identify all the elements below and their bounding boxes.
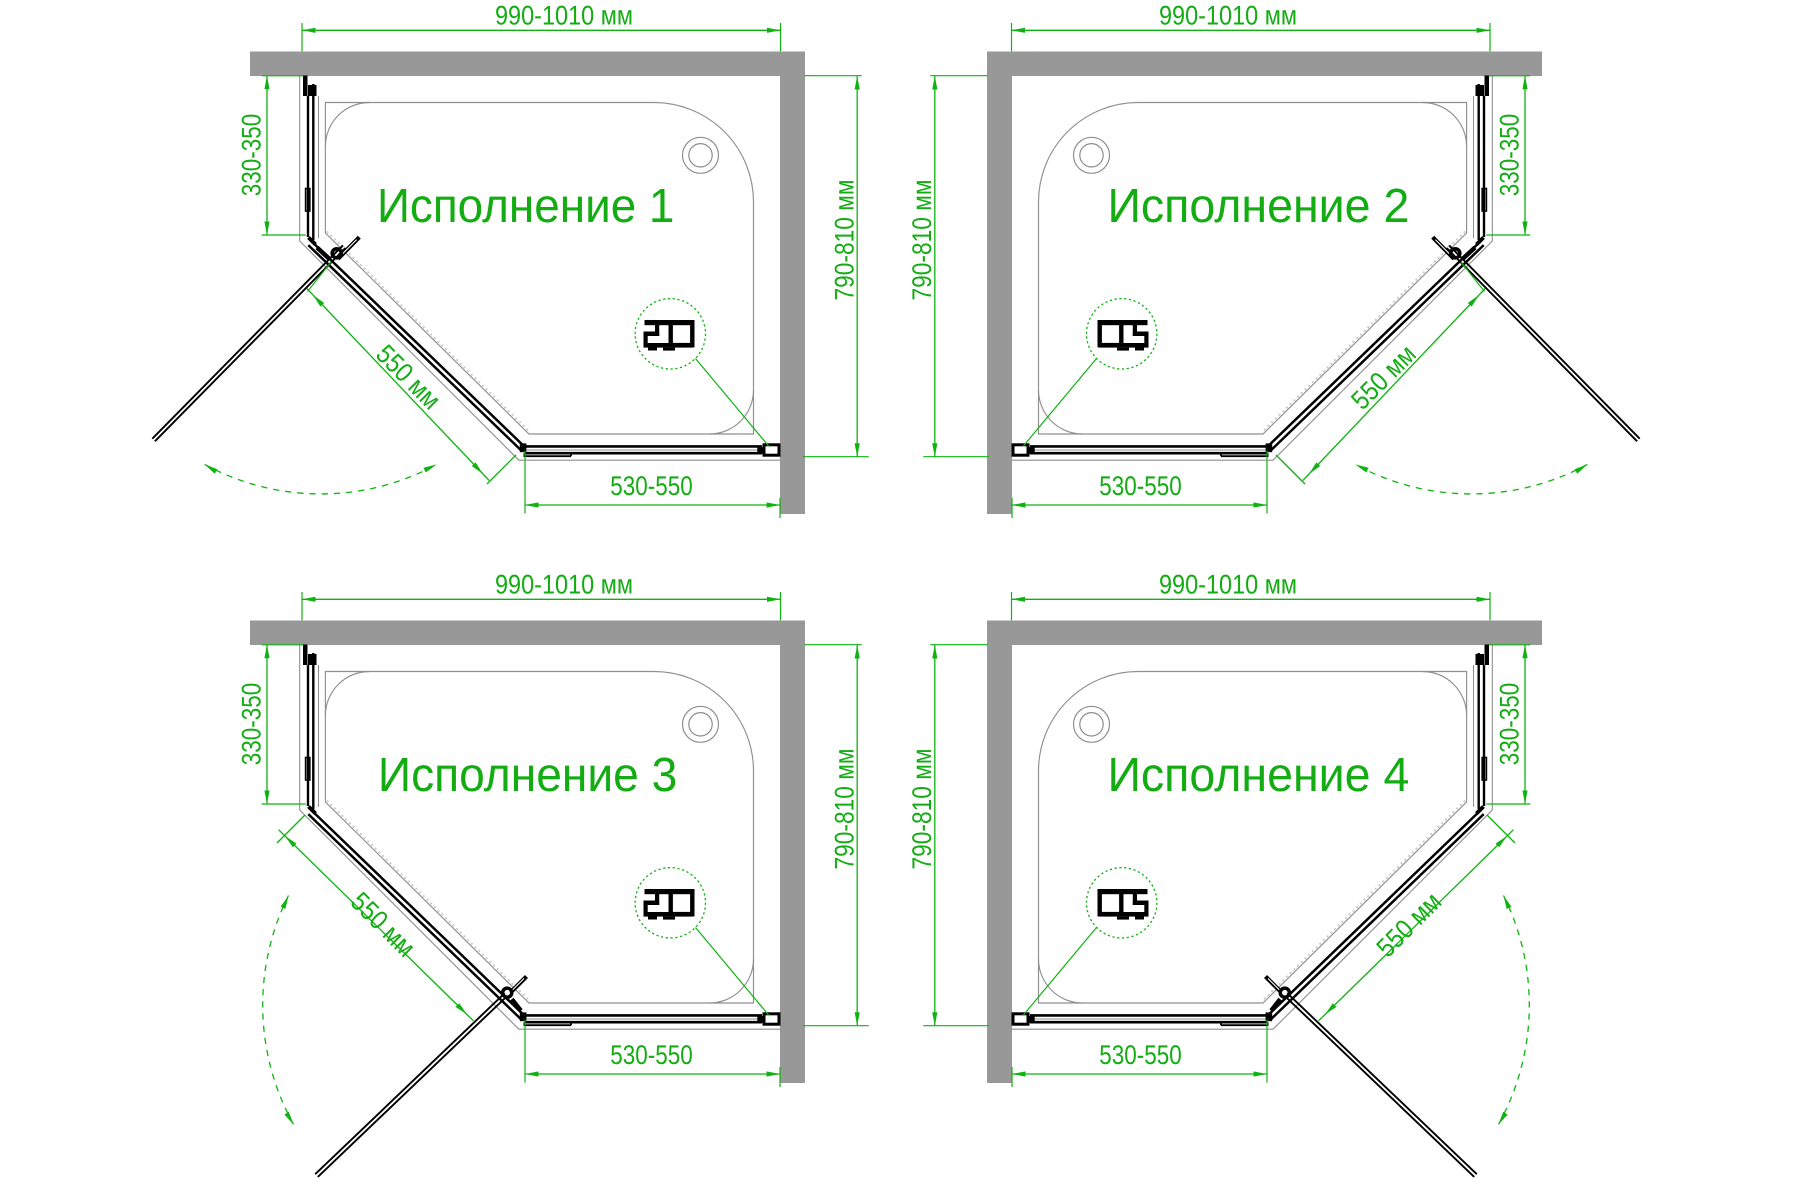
svg-text:990-1010 мм: 990-1010 мм	[1159, 1, 1297, 31]
svg-text:530-550: 530-550	[1099, 1040, 1181, 1070]
svg-text:990-1010 мм: 990-1010 мм	[495, 1, 633, 31]
svg-text:Исполнение 2: Исполнение 2	[1107, 180, 1409, 233]
svg-text:790-810 мм: 790-810 мм	[830, 180, 860, 301]
svg-text:330-350: 330-350	[237, 114, 267, 196]
svg-text:330-350: 330-350	[1495, 114, 1525, 196]
svg-text:550 мм: 550 мм	[345, 886, 421, 962]
svg-text:530-550: 530-550	[610, 471, 692, 501]
svg-text:790-810 мм: 790-810 мм	[907, 180, 937, 301]
svg-text:990-1010 мм: 990-1010 мм	[1159, 570, 1297, 600]
svg-text:790-810 мм: 790-810 мм	[907, 749, 937, 870]
svg-text:550 мм: 550 мм	[1371, 886, 1447, 962]
svg-text:530-550: 530-550	[610, 1040, 692, 1070]
svg-text:330-350: 330-350	[237, 683, 267, 765]
svg-text:Исполнение 1: Исполнение 1	[377, 180, 675, 233]
svg-text:990-1010 мм: 990-1010 мм	[495, 570, 633, 600]
svg-text:790-810 мм: 790-810 мм	[830, 749, 860, 870]
svg-text:330-350: 330-350	[1495, 683, 1525, 765]
svg-text:Исполнение 4: Исполнение 4	[1107, 749, 1409, 802]
svg-text:530-550: 530-550	[1099, 471, 1181, 501]
svg-text:Исполнение 3: Исполнение 3	[378, 749, 677, 802]
